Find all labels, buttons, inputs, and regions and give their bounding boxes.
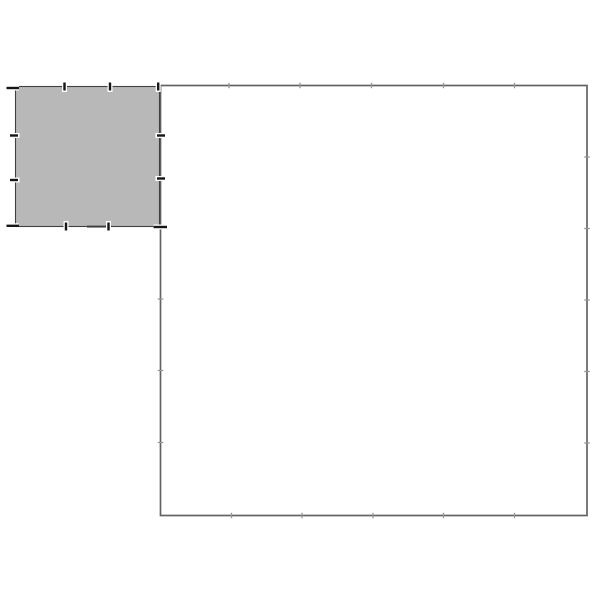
tick-mark [65, 223, 67, 231]
tick-mark [157, 83, 159, 91]
tick-mark [514, 513, 515, 519]
corner-dash [154, 226, 168, 228]
tick-mark [372, 513, 373, 519]
diagram-svg [0, 0, 600, 600]
tick-mark [158, 298, 164, 299]
tick-mark [109, 83, 111, 91]
tick-mark [443, 83, 444, 89]
tick-mark [10, 134, 18, 136]
tick-mark [371, 83, 372, 89]
tick-mark [514, 83, 515, 89]
tick-mark [63, 83, 65, 91]
tick-mark [301, 513, 302, 519]
drawing-canvas [0, 0, 600, 600]
tick-mark [157, 134, 165, 136]
inner-square-group [7, 81, 168, 232]
tick-mark [107, 223, 109, 231]
tick-mark [443, 513, 444, 519]
corner-dash [7, 87, 20, 89]
edge-smudge [87, 226, 106, 228]
tick-mark [584, 442, 590, 443]
tick-mark [584, 299, 590, 300]
tick-mark [299, 83, 300, 89]
tick-mark [231, 513, 232, 519]
outer-rectangle [161, 86, 588, 516]
corner-dash [7, 225, 20, 227]
tick-mark [10, 179, 18, 181]
tick-mark [157, 177, 165, 179]
tick-mark [584, 371, 590, 372]
figure-root [7, 81, 590, 518]
tick-mark [584, 228, 590, 229]
tick-mark [228, 83, 229, 89]
tick-mark [158, 370, 164, 371]
inner-gray-square [16, 87, 160, 227]
tick-mark [158, 442, 164, 443]
tick-mark [584, 156, 590, 157]
